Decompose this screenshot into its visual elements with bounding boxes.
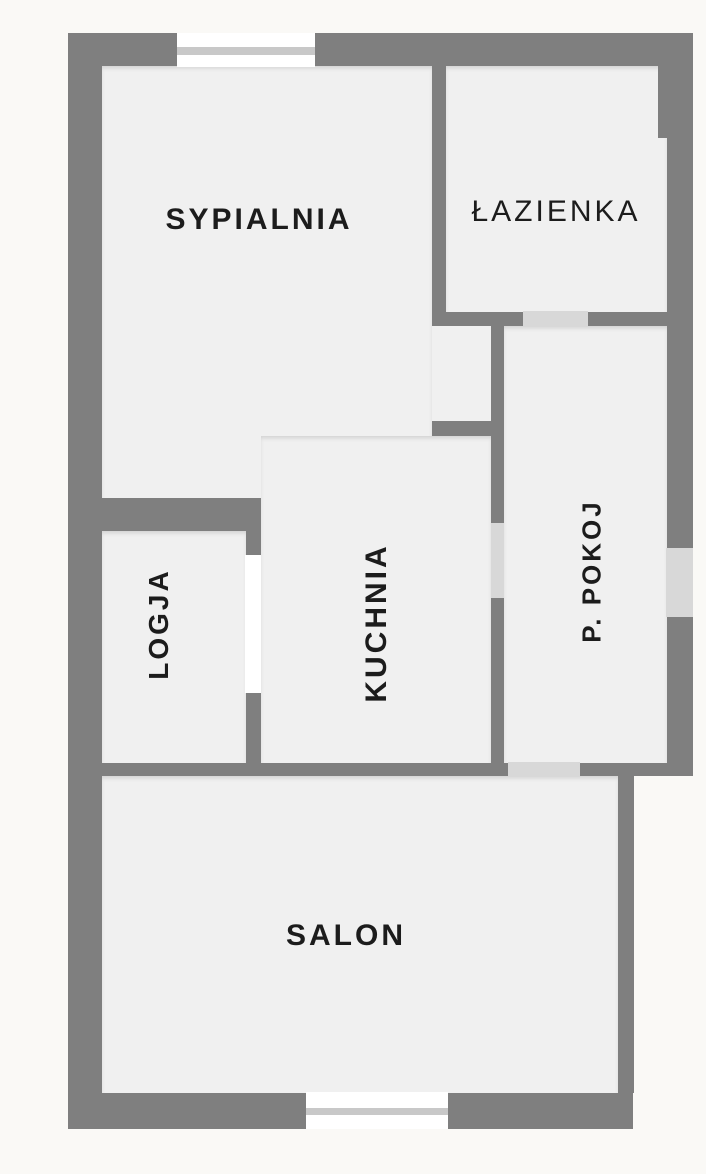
room-label-sypialnia: SYPIALNIA — [165, 203, 352, 237]
door-lazienka — [523, 311, 588, 326]
wall-salon-right — [617, 762, 634, 1093]
outer-wall-top — [68, 33, 693, 67]
wall-sypialnia-lazienka — [431, 66, 446, 326]
door-salon-ppokoj — [508, 762, 580, 776]
room-label-kuchnia: KUCHNIA — [360, 543, 394, 702]
room-sypialnia — [102, 66, 432, 498]
room-label-lazienka: ŁAZIENKA — [471, 195, 640, 229]
room-sypialnia-alcove — [432, 326, 491, 421]
outer-wall-right — [666, 33, 693, 775]
opening-ppokoj-right — [666, 548, 693, 617]
outer-wall-left — [68, 33, 103, 1129]
room-label-p-pokoj: P. POKOJ — [577, 499, 608, 642]
room-label-logja: LOGJA — [143, 568, 175, 679]
lazienka-corner-pillar — [658, 66, 667, 138]
window-salon-bottom — [306, 1092, 448, 1129]
window-logja-kuchnia — [245, 555, 261, 693]
wall-sypialnia-logja — [101, 497, 261, 531]
room-lazienka — [446, 66, 667, 312]
floor-plan: SYPIALNIA ŁAZIENKA P. POKOJ KUCHNIA LOGJ… — [0, 0, 706, 1174]
window-glass-line — [177, 47, 315, 55]
room-label-salon: SALON — [286, 919, 406, 953]
door-kuchnia-ppokoj — [491, 523, 504, 598]
window-sypialnia-top — [177, 33, 315, 67]
wall-salon-top — [101, 762, 693, 776]
window-glass-line — [306, 1108, 448, 1115]
